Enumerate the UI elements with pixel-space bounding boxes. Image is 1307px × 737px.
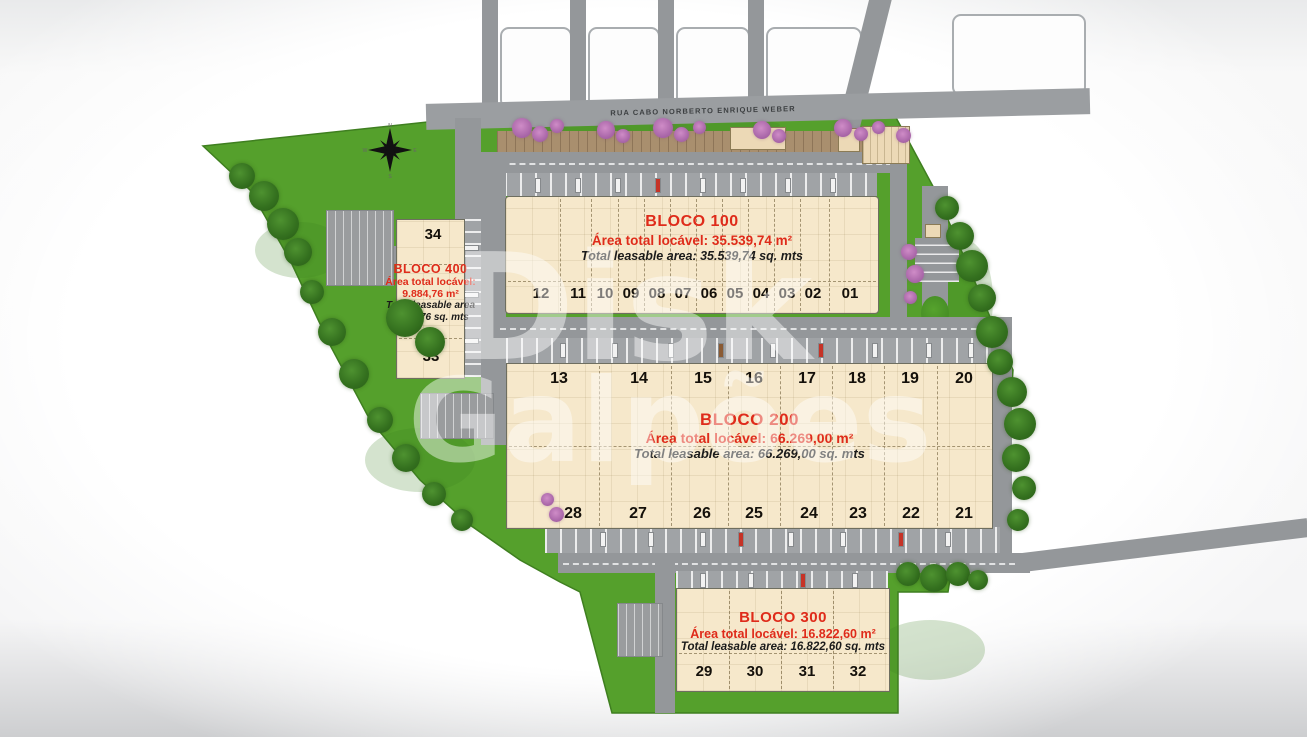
parking-lot-west — [420, 393, 494, 439]
bloco-400-title: BLOCO 400 — [394, 262, 468, 276]
unit-label: 10 — [597, 285, 614, 302]
truck — [668, 343, 674, 358]
truck — [840, 532, 846, 547]
truck — [872, 343, 878, 358]
tree — [339, 359, 369, 389]
neighbor-lot — [500, 27, 572, 109]
tree — [249, 181, 279, 211]
compass-s: S — [388, 174, 392, 178]
unit-label: 08 — [649, 285, 666, 302]
unit-label: 23 — [849, 505, 867, 523]
bloco-400-area-pt-1: Área total locável: — [385, 276, 475, 288]
flower-tree — [541, 493, 554, 506]
truck — [560, 343, 566, 358]
bloco-100-title: BLOCO 100 — [645, 213, 738, 231]
truck — [770, 343, 776, 358]
unit-label: 07 — [675, 285, 692, 302]
truck — [648, 532, 654, 547]
flower-tree — [834, 119, 852, 137]
flower-tree — [901, 244, 917, 260]
tree — [968, 570, 988, 590]
bloco-200-title: BLOCO 200 — [700, 410, 799, 430]
unit-label: 28 — [564, 505, 582, 523]
flower-tree — [854, 127, 868, 141]
truck — [612, 343, 618, 358]
side-street — [570, 0, 586, 104]
unit-label: 27 — [629, 505, 647, 523]
tree — [392, 444, 420, 472]
flower-tree — [550, 119, 564, 133]
unit-label: 21 — [955, 505, 973, 523]
tree — [946, 562, 970, 586]
dock-apron-between-b100-b200 — [506, 338, 992, 363]
unit-label: 14 — [630, 370, 648, 388]
unit-label: 13 — [550, 370, 568, 388]
tree — [987, 349, 1013, 375]
flower-tree — [532, 126, 548, 142]
tree — [451, 509, 473, 531]
tree — [367, 407, 393, 433]
compass-n: N — [388, 123, 392, 129]
flower-tree — [896, 128, 911, 143]
tree — [415, 327, 445, 357]
unit-label: 24 — [800, 505, 818, 523]
unit-label: 32 — [850, 663, 867, 680]
unit-label: 05 — [727, 285, 744, 302]
neighbor-lot — [588, 27, 660, 109]
unit-label: 18 — [848, 370, 866, 388]
unit-label: 01 — [842, 285, 859, 302]
compass-w: W — [363, 148, 368, 154]
truck — [818, 343, 824, 358]
flower-tree — [753, 121, 771, 139]
street-name: RUA CABO NORBERTO ENRIQUE WEBER — [610, 104, 796, 117]
truck — [800, 573, 806, 588]
tree — [946, 222, 974, 250]
flower-tree — [597, 121, 615, 139]
tree — [229, 163, 255, 189]
neighbor-lot — [952, 14, 1086, 96]
truck — [898, 532, 904, 547]
internal-road-top — [455, 152, 907, 173]
bloco-100-area-en: Total leasable area: 35.539,74 sq. mts — [581, 249, 803, 263]
unit-label: 03 — [779, 285, 796, 302]
bloco-100-area-pt: Área total locável: 35.539,74 m² — [592, 233, 792, 248]
unit-label: 15 — [694, 370, 712, 388]
unit-label: 02 — [805, 285, 822, 302]
unit-label: 17 — [798, 370, 816, 388]
bloco-200-area-pt: Área total locável: 66.269,00 m² — [646, 430, 854, 446]
tree — [1002, 444, 1030, 472]
parking-lot-northwest — [326, 210, 394, 286]
dock-apron-b200-south — [545, 527, 1000, 553]
truck — [748, 573, 754, 588]
bloco-300-area-en: Total leasable area: 16.822,60 sq. mts — [681, 641, 885, 653]
guard-booth — [925, 224, 941, 238]
unit-label: 34 — [425, 226, 442, 243]
tree — [422, 482, 446, 506]
unit-label: 11 — [570, 285, 586, 302]
truck — [788, 532, 794, 547]
flower-tree — [653, 118, 673, 138]
building-bloco-200: BLOCO 200 Área total locável: 66.269,00 … — [506, 363, 993, 529]
flower-tree — [772, 129, 786, 143]
tree — [968, 284, 996, 312]
truck — [575, 178, 581, 193]
unit-label: 19 — [901, 370, 919, 388]
tree — [956, 250, 988, 282]
unit-label: 26 — [693, 505, 711, 523]
tree — [300, 280, 324, 304]
truck — [740, 178, 746, 193]
truck — [600, 532, 606, 547]
dock-apron-bloco100-north — [505, 173, 877, 196]
tree — [997, 377, 1027, 407]
unit-label: 12 — [533, 285, 550, 302]
tree — [896, 562, 920, 586]
unit-label: 25 — [745, 505, 763, 523]
internal-road-middle — [495, 317, 1012, 338]
tree — [318, 318, 346, 346]
truck — [464, 292, 479, 298]
unit-label: 29 — [696, 663, 713, 680]
bloco-300-area-pt: Área total locável: 16.822,60 m² — [690, 627, 876, 641]
flower-tree — [674, 127, 689, 142]
bloco-300-title: BLOCO 300 — [739, 609, 827, 626]
truck — [945, 532, 951, 547]
unit-label: 16 — [745, 370, 763, 388]
truck — [738, 532, 744, 547]
dock-apron-b400-east — [463, 219, 481, 377]
truck — [615, 178, 621, 193]
truck — [700, 573, 706, 588]
truck — [535, 178, 541, 193]
tree — [1004, 408, 1036, 440]
flower-tree — [549, 507, 564, 522]
unit-label: 09 — [623, 285, 640, 302]
truck — [830, 178, 836, 193]
flower-tree — [512, 118, 532, 138]
tree — [1007, 509, 1029, 531]
building-bloco-300: BLOCO 300 Área total locável: 16.822,60 … — [676, 588, 890, 692]
flower-tree — [872, 121, 885, 134]
tree — [1012, 476, 1036, 500]
side-street — [658, 0, 674, 102]
truck — [718, 343, 724, 358]
unit-label: 04 — [753, 285, 770, 302]
tree — [920, 564, 948, 592]
unit-label: 30 — [747, 663, 764, 680]
truck — [464, 245, 479, 251]
bloco-400-area-pt-2: 9.884,76 m² — [402, 288, 459, 300]
site-plan: RUA CABO NORBERTO ENRIQUE WEBER — [0, 0, 1307, 737]
flower-tree — [616, 129, 630, 143]
flower-tree — [906, 265, 924, 283]
tree — [935, 196, 959, 220]
compass-e: E — [413, 148, 417, 154]
flower-tree — [904, 291, 917, 304]
tree — [284, 238, 312, 266]
unit-label: 20 — [955, 370, 973, 388]
bloco-200-area-en: Total leasable area: 66.269,00 sq. mts — [634, 446, 865, 461]
truck — [700, 178, 706, 193]
truck — [785, 178, 791, 193]
compass-rose: N S E W — [362, 122, 418, 178]
tree — [267, 208, 299, 240]
truck — [968, 343, 974, 358]
truck — [852, 573, 858, 588]
unit-label: 22 — [902, 505, 920, 523]
tree — [976, 316, 1008, 348]
truck — [655, 178, 661, 193]
unit-label: 31 — [799, 663, 816, 680]
side-street — [482, 0, 498, 106]
flower-tree — [693, 121, 706, 134]
parking-lot-south — [617, 603, 663, 657]
truck — [464, 338, 479, 344]
unit-label: 06 — [701, 285, 718, 302]
side-street — [748, 0, 764, 100]
truck — [926, 343, 932, 358]
building-bloco-100: BLOCO 100 Área total locável: 35.539,74 … — [505, 196, 879, 314]
truck — [700, 532, 706, 547]
